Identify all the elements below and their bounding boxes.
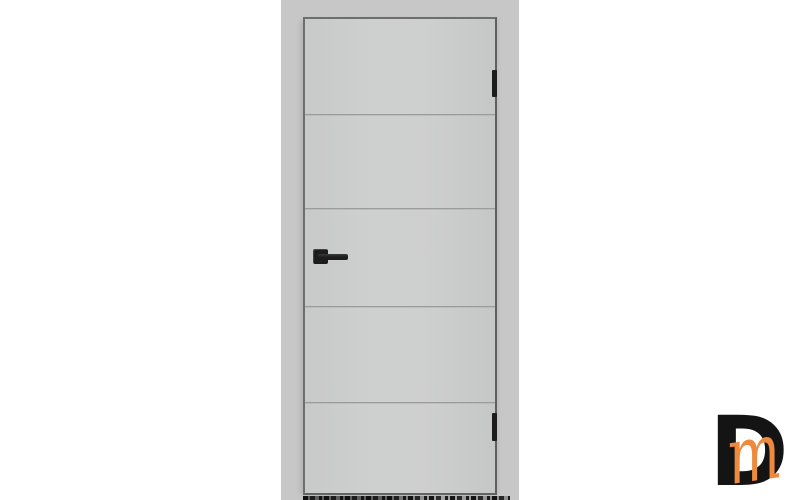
watermark-logo: D m	[708, 410, 792, 496]
bottom-hinge	[492, 413, 497, 441]
door-groove	[305, 402, 495, 404]
door-handle-lever	[318, 254, 348, 260]
door-groove	[305, 114, 495, 116]
door-groove	[305, 208, 495, 210]
door-bottom-shadow	[303, 496, 510, 500]
door-leaf	[303, 17, 497, 495]
product-image: D m	[0, 0, 800, 500]
door-groove	[305, 306, 495, 308]
top-hinge	[492, 70, 497, 97]
